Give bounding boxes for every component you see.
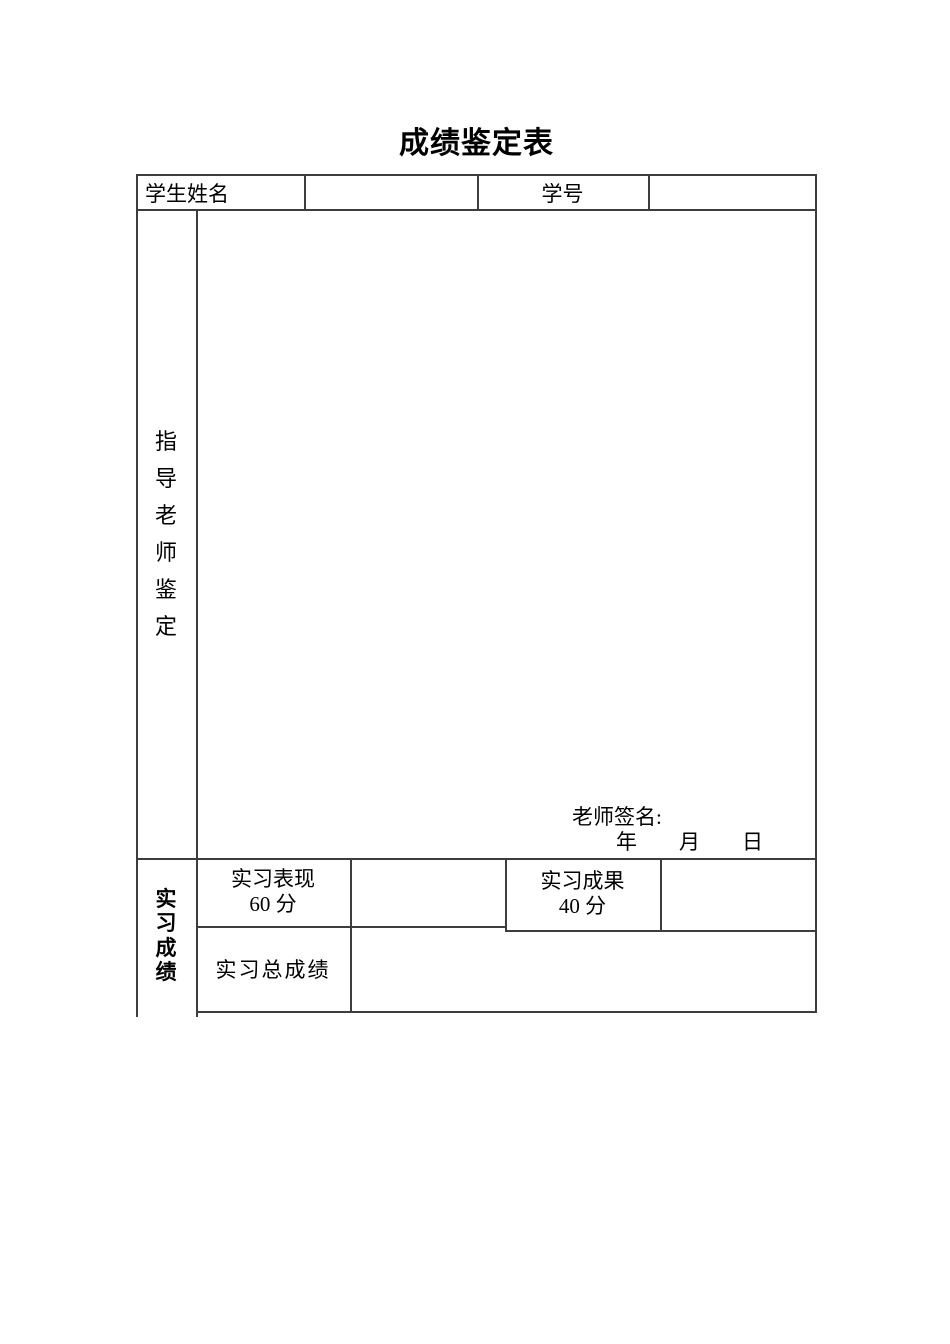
page-title: 成绩鉴定表 — [136, 127, 817, 161]
total-score-label: 实习总成绩 — [196, 926, 350, 1011]
instructor-assessment-label: 指 导 老 师 鉴 定 — [136, 209, 196, 858]
total-score-value[interactable] — [352, 932, 815, 1009]
table-border-right — [815, 174, 817, 1013]
result-score-value[interactable] — [662, 860, 813, 928]
signature-date-line: 年 月 日 — [616, 830, 763, 855]
student-name-value[interactable] — [306, 176, 475, 209]
student-id-value[interactable] — [650, 176, 813, 209]
table-border-bottom — [196, 1011, 817, 1013]
performance-score-label: 实习表现 60 分 — [196, 858, 350, 926]
performance-score-value[interactable] — [352, 860, 503, 924]
teacher-signature-label: 老师签名: — [572, 805, 662, 830]
student-id-label: 学号 — [479, 176, 646, 209]
document-page: 成绩鉴定表 学生姓名 学号 指 导 老 师 鉴 定 老师签名: 年 月 日 实 … — [0, 0, 950, 1344]
student-name-label: 学生姓名 — [138, 176, 309, 209]
result-score-label: 实习成果 40 分 — [505, 858, 660, 930]
instructor-comment-area[interactable] — [198, 211, 813, 796]
internship-grade-label: 实 习 成 绩 — [136, 858, 196, 1013]
